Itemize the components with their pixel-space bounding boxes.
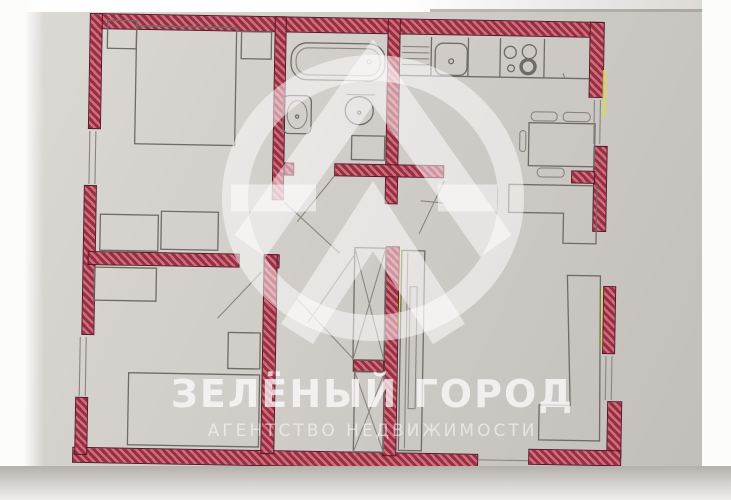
nightstand-bedroom2 — [228, 332, 261, 369]
door-swing-kitchen-stop — [421, 201, 445, 203]
dining-table — [528, 123, 595, 167]
photo-bottom-edge — [0, 466, 731, 500]
corner-sofa — [508, 184, 597, 244]
chair-top-right — [563, 112, 590, 121]
kitchen-counter-edge — [400, 75, 589, 78]
wardrobe-long — [398, 250, 424, 450]
door-swing-kitchen — [419, 181, 444, 234]
dish-rack — [402, 46, 429, 64]
kitchen-sink-drain — [449, 59, 454, 64]
bathtub-inner — [296, 48, 380, 76]
closet-lower — [353, 372, 384, 453]
kitchen-counter-divider — [500, 38, 501, 77]
door-swing-bedroom2 — [218, 271, 262, 319]
kitchen-counter-divider — [431, 37, 432, 76]
door-swing-corridor-a — [308, 251, 357, 324]
photo-margin-left — [0, 0, 44, 500]
entrance-threshold — [478, 460, 528, 461]
door-swing-bedroom1 — [284, 202, 341, 253]
chair-top-left — [531, 112, 557, 121]
dresser-right — [161, 211, 219, 250]
stove — [504, 44, 537, 74]
door-swing-corridor-b — [296, 299, 355, 360]
single-bed — [127, 373, 259, 447]
washing-machine — [351, 136, 384, 161]
chair-left — [520, 131, 526, 152]
wardrobe-door-line — [404, 253, 407, 449]
corner-cabinet — [539, 275, 603, 441]
kitchen-counter-divider — [544, 39, 545, 78]
shelf — [94, 267, 157, 301]
window-left-upper — [89, 131, 96, 184]
floor-plan-photo: ЗЕЛЁНЫЙ ГОРОД АГЕНТСТВО НЕДВИЖИМОСТИ — [0, 0, 731, 500]
nightstand-right — [241, 32, 271, 60]
closet-upper — [353, 248, 386, 361]
bathtub-drain — [367, 60, 371, 64]
nightstand-left — [107, 20, 136, 49]
kitchen-counter-divider — [468, 38, 469, 77]
window-left-lower — [79, 337, 86, 396]
paper-edge-top — [430, 9, 705, 12]
counter-tick — [563, 73, 565, 78]
pencil-drawing-layer — [0, 0, 731, 500]
photo-margin-right — [702, 0, 731, 500]
chair-bottom — [537, 168, 564, 177]
double-bed — [135, 26, 237, 146]
floor-plan — [0, 0, 731, 500]
wardrobe-inner-panel — [408, 287, 417, 409]
toilet-drain — [358, 111, 361, 114]
bathroom-sink-drain — [296, 115, 299, 118]
dresser-left — [100, 214, 159, 251]
window-living — [605, 356, 612, 400]
door-swing-bathroom — [297, 176, 334, 223]
